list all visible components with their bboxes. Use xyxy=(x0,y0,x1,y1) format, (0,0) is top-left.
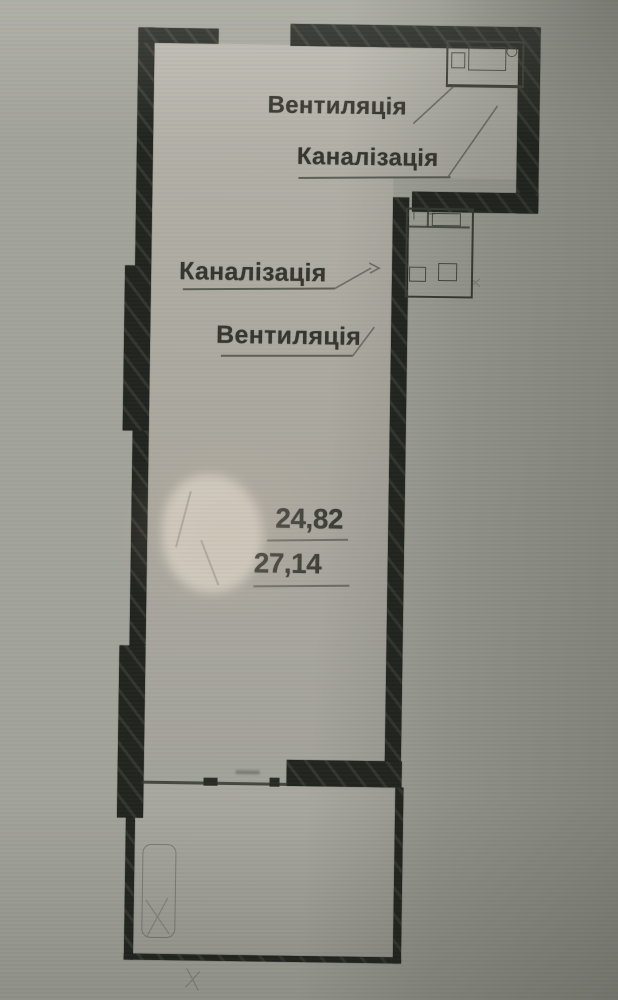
label-sewerage-middle: Каналізація xyxy=(179,257,327,288)
leader-sewerage-top xyxy=(449,105,498,177)
label-ventilation-top: Вентиляція xyxy=(267,91,407,121)
balcony-shaft-cross xyxy=(145,898,170,936)
underline-area-upper xyxy=(267,539,348,542)
underline-sewerage-top xyxy=(298,175,450,180)
leader-sewerage-middle xyxy=(335,267,371,289)
pencil-x-bathroom-corner xyxy=(471,279,480,287)
scanned-floorplan-photo: Вентиляція Каналізація Каналізація Венти… xyxy=(0,0,618,1000)
leader-ventilation-top xyxy=(413,86,454,125)
underline-area-lower xyxy=(253,584,349,587)
area-value-upper: 24,82 xyxy=(275,503,343,536)
label-sewerage-top: Каналізація xyxy=(297,143,439,173)
label-ventilation-middle: Вентиляція xyxy=(216,321,361,352)
underline-ventilation-middle xyxy=(221,354,353,358)
pencil-x-below-balcony xyxy=(185,968,199,990)
floorplan-drawing: Вентиляція Каналізація Каналізація Венти… xyxy=(0,0,618,1000)
area-value-lower: 27,14 xyxy=(254,547,322,580)
